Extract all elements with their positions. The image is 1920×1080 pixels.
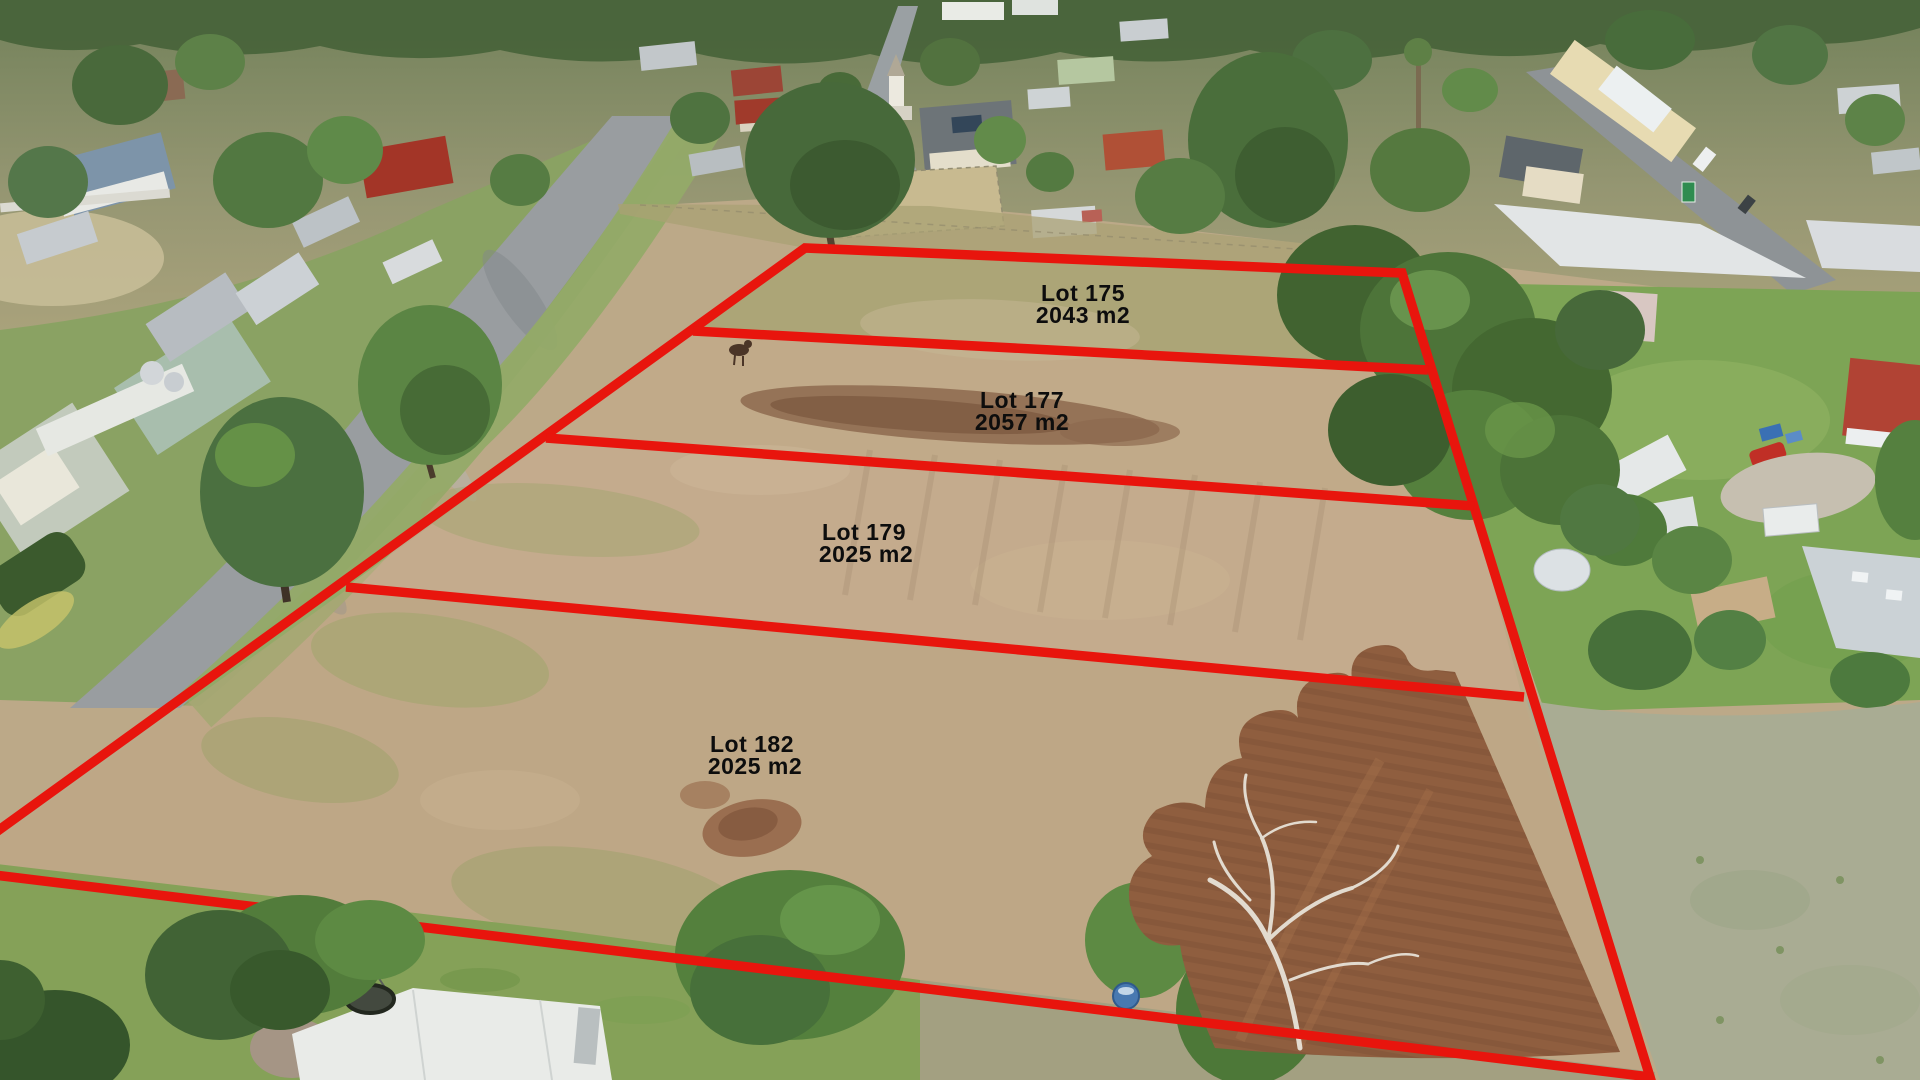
caravan bbox=[1763, 504, 1819, 537]
skylight bbox=[1852, 571, 1869, 583]
lot-179-area: 2025 m2 bbox=[819, 541, 913, 567]
church-tower bbox=[889, 76, 904, 108]
dome-tent bbox=[1534, 549, 1590, 591]
water-tank bbox=[140, 361, 164, 385]
blue-tank bbox=[1113, 983, 1139, 1009]
palm-crown bbox=[1404, 38, 1432, 66]
palm-trunk bbox=[1416, 58, 1421, 130]
gum-tree bbox=[200, 397, 364, 587]
lot-182-area: 2025 m2 bbox=[708, 753, 802, 779]
aerial-photo: Lot 175 2043 m2 Lot 177 2057 m2 Lot 179 … bbox=[0, 0, 1920, 1080]
road-sign bbox=[1682, 182, 1695, 202]
water-tank bbox=[164, 372, 184, 392]
mansion-roof bbox=[942, 2, 1004, 20]
lot-175-area: 2043 m2 bbox=[1036, 302, 1130, 328]
lot-177-area: 2057 m2 bbox=[975, 409, 1069, 435]
